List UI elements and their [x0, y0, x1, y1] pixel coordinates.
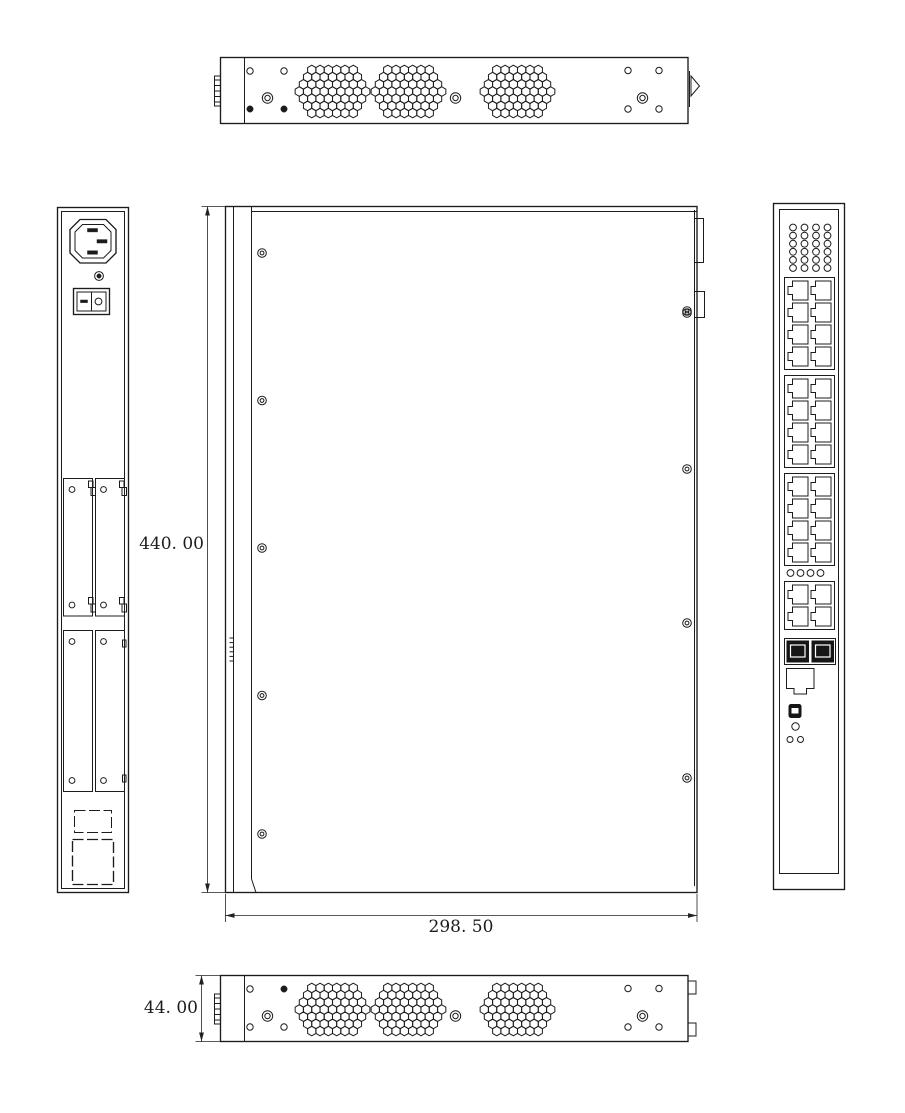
led-hole [797, 570, 804, 577]
inlet-pin [88, 229, 98, 232]
rj45-port [811, 379, 831, 398]
main-view [226, 207, 705, 893]
switch-on-mark [81, 300, 88, 303]
rj45-port [811, 585, 831, 604]
vent-hole [790, 265, 797, 272]
vent-hole [813, 240, 820, 247]
rj45-port [811, 499, 831, 518]
latch-hook [688, 981, 696, 994]
vent-hole [790, 257, 797, 264]
chassis-hole [281, 986, 287, 992]
screw-hole [69, 639, 75, 645]
dimension-height-label: 440. 00 [128, 535, 204, 554]
screw-hole [69, 602, 75, 608]
vent-hole [790, 240, 797, 247]
screw [258, 396, 267, 405]
vent-hole [824, 224, 831, 231]
chassis-hole [656, 1024, 662, 1030]
screw-hole [101, 639, 107, 645]
rj45-port-block [785, 376, 835, 468]
screw [258, 544, 267, 553]
screw [683, 774, 692, 783]
screw [262, 93, 272, 103]
slot-cover [64, 479, 93, 617]
rj45-port [788, 607, 808, 626]
screw [258, 691, 267, 700]
rj45-port [788, 347, 808, 366]
front-view [774, 204, 845, 890]
cad-drawing [0, 0, 905, 1113]
vent-hole [824, 248, 831, 255]
power-inlet [70, 220, 116, 264]
chassis-hole [625, 985, 631, 991]
indicator-hole [792, 723, 799, 730]
slot-cover [64, 631, 93, 792]
dimension-depth-label: 44. 00 [126, 999, 198, 1018]
rj45-port [811, 543, 831, 562]
mechanical-drawing-canvas: 440. 00 298. 50 44. 00 [0, 0, 905, 1113]
vent-hole [813, 265, 820, 272]
dimension-arrow [199, 976, 204, 985]
latch-hook [688, 1023, 696, 1036]
switch-off-mark [95, 298, 102, 305]
screw [637, 1011, 647, 1021]
vent-hole [801, 240, 808, 247]
vent-hole [824, 257, 831, 264]
rj45-port [811, 281, 831, 300]
vent-hole [813, 224, 820, 231]
vent-hole [801, 232, 808, 239]
rj45-port [788, 303, 808, 322]
slot-cover [96, 479, 125, 617]
screw [450, 93, 460, 103]
knockout-large [73, 840, 114, 885]
led-hole [787, 570, 794, 577]
vent-hole [790, 248, 797, 255]
rj45-port [788, 521, 808, 540]
chassis-hole [656, 67, 662, 73]
mini-usb-port [789, 705, 801, 718]
chassis-hole [247, 1024, 253, 1030]
screw-hole [101, 778, 107, 784]
expansion-slot-covers-upper [64, 479, 127, 617]
screw [683, 619, 692, 628]
rail-bracket [695, 292, 705, 318]
chassis-hole [247, 106, 253, 112]
screw [262, 1011, 272, 1021]
rj45-port [788, 445, 808, 464]
rj45-port [811, 607, 831, 626]
vent-hole [801, 248, 808, 255]
rj45-port [788, 423, 808, 442]
vent-hole [813, 257, 820, 264]
dimension-arrow [205, 884, 210, 893]
inlet-pin [97, 240, 107, 243]
chassis-hole [281, 1024, 287, 1030]
rj45-port [811, 325, 831, 344]
screw-hole [101, 487, 107, 493]
vent-hole [790, 232, 797, 239]
vent-hole [824, 232, 831, 239]
vent-hole [824, 265, 831, 272]
vent-hole [801, 224, 808, 231]
chassis-hole [247, 68, 253, 74]
rj45-port [811, 445, 831, 464]
rj45-port [811, 477, 831, 496]
chassis-hole [625, 67, 631, 73]
vent-hole [813, 232, 820, 239]
rj45-port [788, 477, 808, 496]
screw [258, 249, 267, 258]
hex-vent-cluster [295, 65, 370, 118]
rail-bracket [695, 219, 704, 263]
hex-vent-cluster [295, 983, 370, 1036]
rj45-port-block [785, 474, 835, 566]
indicator-hole [787, 737, 793, 743]
vent-hole [801, 265, 808, 272]
rear-view [58, 208, 129, 893]
rj45-port-block [785, 278, 835, 370]
rj45-port [788, 401, 808, 420]
rj45-port [811, 303, 831, 322]
power-switch [74, 289, 110, 315]
hex-vent-cluster [371, 983, 446, 1036]
screw [637, 93, 647, 103]
slot-cover [96, 631, 125, 792]
knockout-small [75, 811, 112, 833]
indicator-hole [798, 737, 804, 743]
hex-vent-cluster [480, 65, 555, 118]
screw-hole [69, 778, 75, 784]
dimension-arrow [226, 913, 235, 918]
dimension-arrow [688, 913, 697, 918]
dimension-arrow [199, 1033, 204, 1042]
chassis-hole [656, 985, 662, 991]
rj45-port [811, 423, 831, 442]
screw-hole [69, 487, 75, 493]
rj45-port [811, 347, 831, 366]
expansion-slot-covers-lower [64, 631, 127, 792]
vent-hole-grid [790, 224, 831, 271]
rj45-port [811, 401, 831, 420]
rj45-port [788, 585, 808, 604]
chassis-hole [625, 106, 631, 112]
vent-hole [790, 224, 797, 231]
latch-hook [691, 76, 700, 96]
dimension-height [202, 207, 226, 893]
latch-cutout [120, 598, 125, 605]
vent-hole [813, 248, 820, 255]
chassis-hole [656, 106, 662, 112]
dimension-width-label: 298. 50 [406, 918, 516, 937]
console-port [787, 669, 815, 695]
bottom-view [215, 976, 697, 1042]
sfp-cage-block [785, 639, 836, 665]
hex-vent-cluster [480, 983, 555, 1036]
chassis-hole [625, 1024, 631, 1030]
screw [450, 1011, 460, 1021]
rj45-port [788, 499, 808, 518]
rj45-port [788, 379, 808, 398]
screw [258, 830, 267, 839]
inlet-pin [88, 251, 98, 254]
screw-hole [101, 602, 107, 608]
rj45-port [811, 521, 831, 540]
vent-hole [801, 257, 808, 264]
rj45-port-block [785, 582, 835, 630]
hex-vent-cluster [371, 65, 446, 118]
rj45-port [788, 281, 808, 300]
latch-cutout [120, 481, 125, 488]
screw [683, 465, 692, 474]
chassis-hole [247, 986, 253, 992]
top-view [215, 58, 700, 124]
chassis-hole [281, 106, 287, 112]
vent-hole [824, 240, 831, 247]
led-hole [807, 570, 814, 577]
chassis-hole [281, 68, 287, 74]
rj45-port [788, 325, 808, 344]
dimension-arrow [205, 207, 210, 216]
rj45-port [788, 543, 808, 562]
led-hole [817, 570, 824, 577]
